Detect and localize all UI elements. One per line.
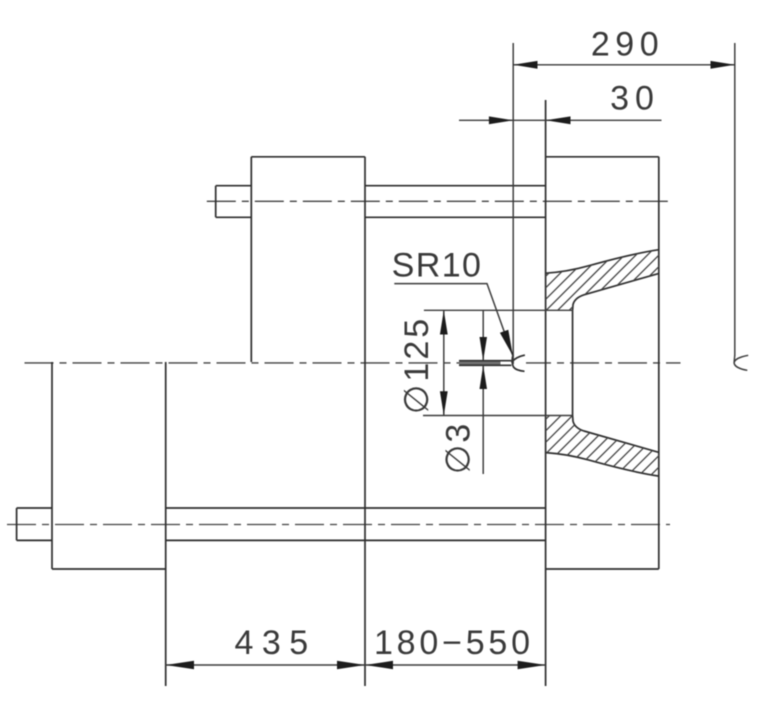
svg-text:∅3: ∅3 bbox=[440, 422, 478, 475]
svg-text:180−550: 180−550 bbox=[374, 624, 534, 662]
svg-text:290: 290 bbox=[591, 26, 664, 64]
svg-text:435: 435 bbox=[234, 624, 316, 662]
svg-text:30: 30 bbox=[610, 79, 660, 117]
svg-text:SR10: SR10 bbox=[392, 247, 483, 285]
svg-text:∅125: ∅125 bbox=[398, 316, 436, 414]
